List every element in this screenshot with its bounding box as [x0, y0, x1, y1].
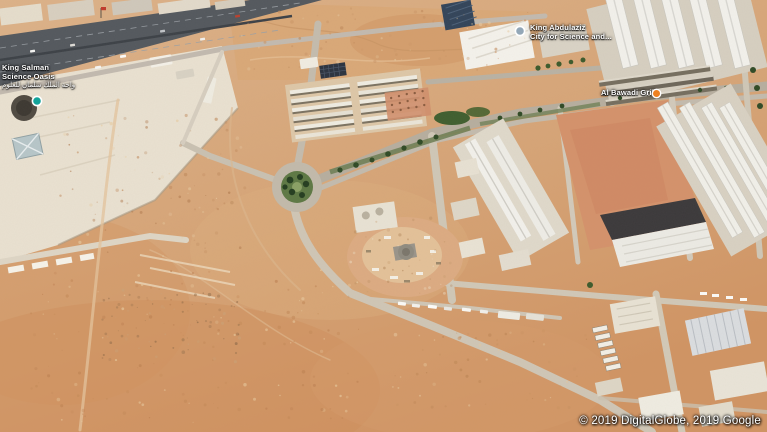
map-label-grill: Al Bawadi Grill: [601, 88, 656, 97]
label-line: Al Bawadi Grill: [601, 88, 656, 97]
label-line-arabic: واحة الملك سلمان للعلوم: [2, 81, 75, 90]
map-label-king-salman-science-oasis: King Salman Science Oasis واحة الملك سلم…: [2, 63, 75, 90]
restaurant-marker-icon[interactable]: [651, 88, 662, 99]
poi-marker-icon[interactable]: [514, 25, 526, 37]
label-line: City for Science and...: [530, 32, 612, 41]
label-line: Science Oasis: [2, 72, 75, 81]
map-label-kacst: King Abdulaziz City for Science and...: [530, 23, 612, 41]
label-line: King Abdulaziz: [530, 23, 612, 32]
label-line: King Salman: [2, 63, 75, 72]
roundabout: [272, 162, 322, 212]
map-attribution: © 2019 DigitalGlobe, 2019 Google: [579, 415, 761, 427]
satellite-map-viewport[interactable]: King Salman Science Oasis واحة الملك سلم…: [0, 0, 767, 432]
footings-patch: [384, 87, 431, 120]
park-marker-icon[interactable]: [31, 95, 43, 107]
satellite-imagery: [0, 0, 767, 432]
